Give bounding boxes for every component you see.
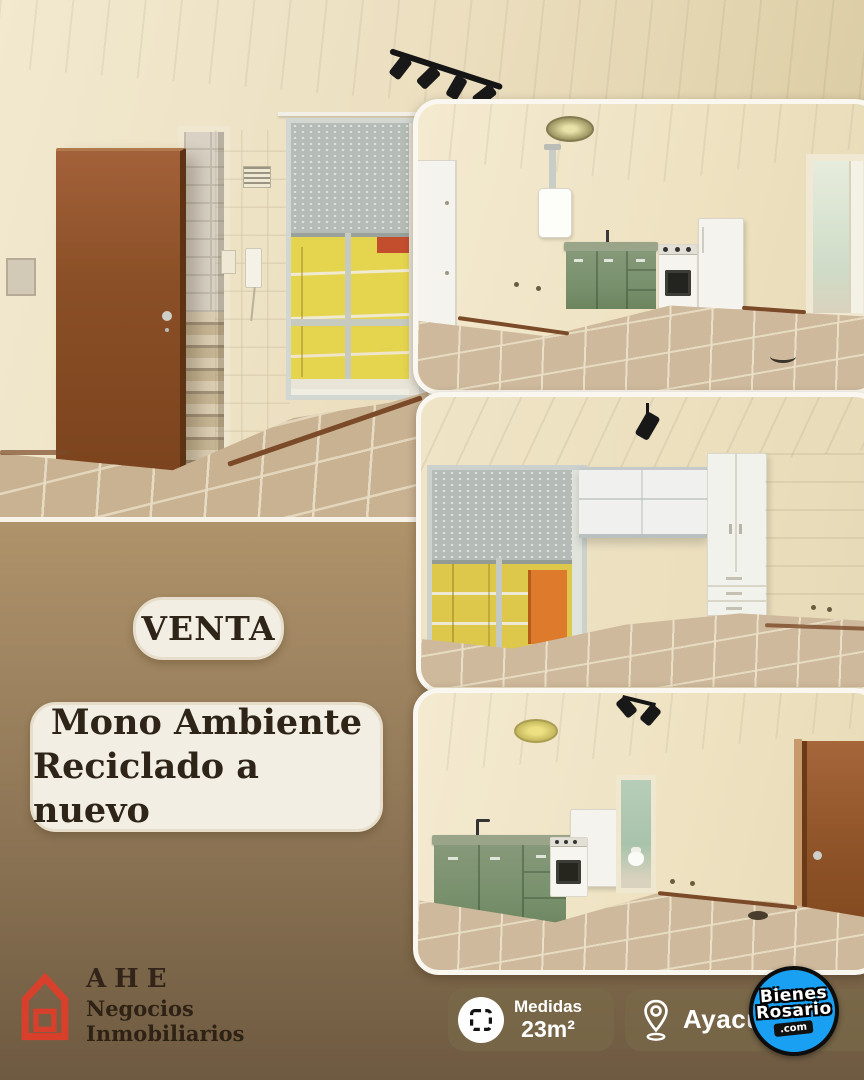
watermark-domain: .com: [774, 1020, 814, 1037]
photo-kitchen-top: [413, 99, 864, 395]
card1-sink-faucet: [606, 230, 609, 242]
door-handle: [162, 311, 172, 321]
card1-ceiling-light: [546, 116, 594, 142]
flyer-canvas: VENTA Mono Ambiente Reciclado a nuevo AH…: [0, 0, 864, 1080]
hero-baseboard-left: [0, 450, 70, 455]
location-pin-icon: [637, 996, 675, 1044]
card1-doorway: [806, 154, 864, 320]
house-outline-icon: [18, 969, 72, 1041]
sale-badge-label: VENTA: [141, 609, 275, 648]
card1-oven-window: [665, 270, 691, 296]
card2-overhead-cabinets: [579, 467, 707, 538]
card3-oven-window: [556, 860, 581, 884]
hero-electrical-box: [6, 258, 36, 296]
listing-title-box: Mono Ambiente Reciclado a nuevo: [30, 702, 383, 832]
card1-fridge: [698, 218, 744, 310]
sale-badge: VENTA: [133, 597, 284, 660]
listing-title-line1: Mono Ambiente: [51, 701, 362, 745]
agency-logo: AHE Negocios Inmobiliarios: [18, 966, 348, 1044]
card3-outlet: [670, 879, 675, 884]
card1-floor-cable: [770, 350, 796, 363]
card1-water-heater: [538, 188, 572, 238]
card3-faucet: [476, 821, 479, 835]
hero-window: [286, 118, 424, 400]
area-dashed-square-icon: [458, 997, 504, 1043]
card2-roller-shutter: [432, 470, 572, 564]
card1-heater-pipe: [549, 148, 556, 188]
card2-right-wall: [765, 453, 864, 629]
card3-spotlight: [618, 693, 662, 727]
hero-roller-shutter: [291, 123, 409, 237]
hero-light-switch: [221, 250, 236, 274]
card1-countertop: [564, 242, 658, 251]
card2-window-view: [432, 564, 572, 650]
card3-stove: [550, 837, 588, 897]
card3-bathroom-doorway: [616, 775, 656, 893]
hero-vent-grille: [243, 166, 271, 188]
card3-door-handle: [813, 851, 822, 860]
watermark-line2: Rosario: [756, 1000, 833, 1021]
card2-orange-door: [528, 570, 567, 644]
agency-tagline: Negocios Inmobiliarios: [86, 996, 348, 1046]
card3-floor-object: [748, 911, 768, 920]
agency-name: AHE: [86, 964, 348, 994]
card2-outlet: [811, 605, 816, 610]
measures-label: Medidas: [514, 997, 582, 1017]
measures-value: 23m²: [521, 1016, 575, 1042]
bienes-rosario-logo: Bienes Rosario .com: [749, 966, 839, 1056]
card1-left-cabinet: [416, 160, 457, 344]
hero-wooden-door: [56, 148, 186, 483]
card3-toilet: [628, 852, 644, 866]
photo-room-middle: [416, 392, 864, 694]
card1-green-cabinet: [566, 251, 656, 309]
photo-kitchen-bottom: [413, 688, 864, 975]
card3-ceiling-lamp: [514, 719, 558, 743]
card1-stove: [658, 244, 698, 309]
card2-wardrobe: [707, 453, 767, 633]
measures-badge: Medidas 23m²: [448, 988, 614, 1051]
card2-spotlight: [636, 403, 662, 443]
hero-curtain-rail: [278, 112, 424, 116]
card1-outlet: [514, 282, 519, 287]
card1-ceiling: [418, 104, 864, 190]
hero-intercom: [245, 248, 262, 288]
listing-title-line2: Reciclado a nuevo: [33, 745, 380, 833]
